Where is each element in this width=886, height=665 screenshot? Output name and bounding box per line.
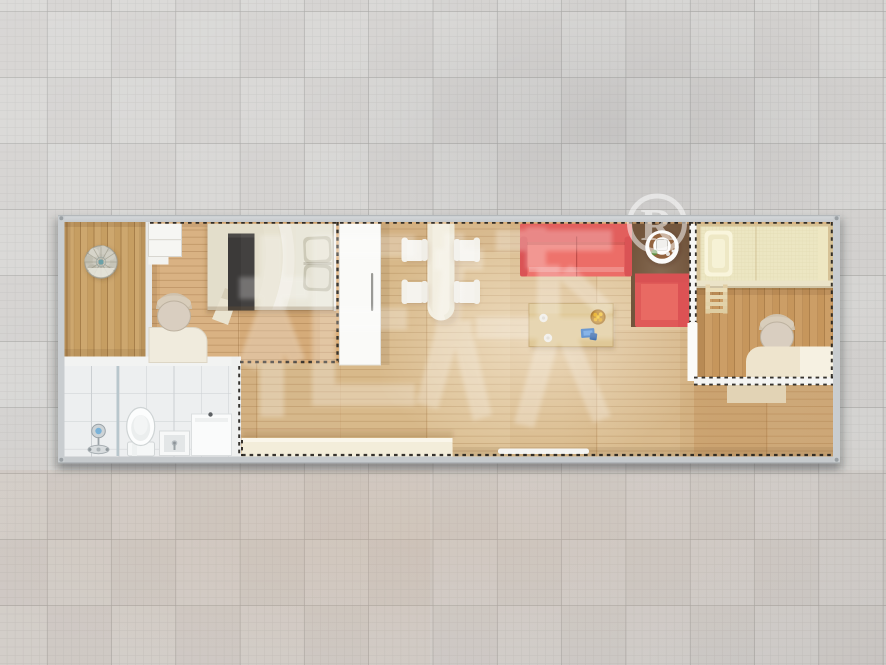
svg-text:R: R (640, 199, 674, 250)
